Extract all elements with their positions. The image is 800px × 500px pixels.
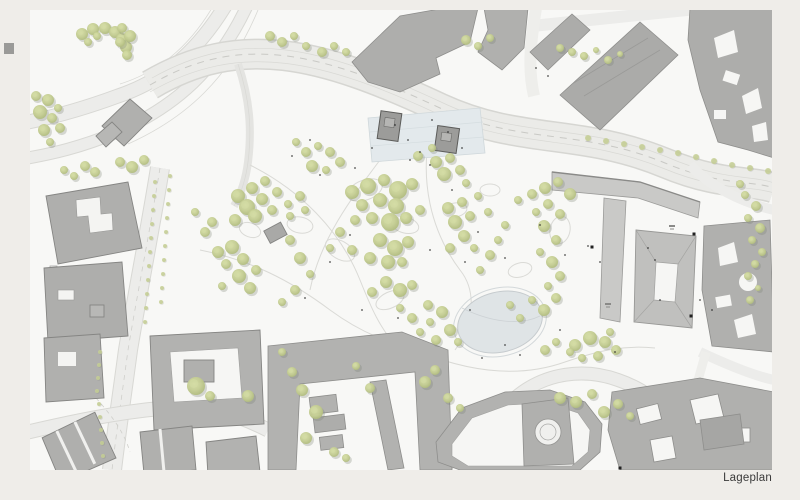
courtyard-building <box>634 230 696 328</box>
offsheet-building <box>4 43 14 54</box>
marker-dot <box>429 249 431 251</box>
marker-dot <box>464 261 466 263</box>
marker-dot <box>504 257 506 259</box>
marker-dot <box>429 164 431 166</box>
plan-caption: Lageplan <box>723 472 772 484</box>
marker-dot <box>349 234 351 236</box>
entrance-marker <box>591 246 594 249</box>
marker-dot <box>291 155 293 157</box>
marker-dot <box>699 299 701 301</box>
marker-dot <box>329 261 331 263</box>
site-plan-map <box>0 0 800 500</box>
marker-dot <box>319 174 321 176</box>
site-plan-page: Lageplan <box>0 0 800 500</box>
marker-dot <box>407 139 409 141</box>
marker-dot <box>451 189 453 191</box>
marker-dot <box>394 124 396 126</box>
marker-dot <box>304 297 306 299</box>
marker-dot <box>309 139 311 141</box>
marker-dot <box>711 309 713 311</box>
marker-dot <box>535 67 537 69</box>
marker-dot <box>587 245 589 247</box>
marker-dot <box>469 309 471 311</box>
plaza-pavilion <box>434 126 459 154</box>
marker-dot <box>539 224 541 226</box>
marker-dot <box>371 147 373 149</box>
plaza-pavilion <box>377 111 402 142</box>
marker-dot <box>361 309 363 311</box>
block-east <box>702 220 774 352</box>
marker-dot <box>504 344 506 346</box>
marker-dot <box>547 75 549 77</box>
marker-dot <box>519 354 521 356</box>
marker-dot <box>614 351 616 353</box>
marker-dot <box>409 159 411 161</box>
entrance-marker <box>619 467 622 470</box>
marker-dot <box>659 299 661 301</box>
marker-dot <box>599 261 601 263</box>
plaza <box>368 108 485 162</box>
marker-dot <box>559 329 561 331</box>
marker-dot <box>397 317 399 319</box>
marker-dot <box>354 167 356 169</box>
marker-dot <box>647 247 649 249</box>
marker-dot <box>564 254 566 256</box>
marker-dot <box>477 231 479 233</box>
marker-dot <box>431 119 433 121</box>
marker-dot <box>461 147 463 149</box>
entrance-marker <box>690 315 693 318</box>
marker-dot <box>419 151 421 153</box>
marker-dot <box>654 259 656 261</box>
marker-dot <box>447 131 449 133</box>
marker-dot <box>481 357 483 359</box>
entrance-marker <box>693 233 696 236</box>
